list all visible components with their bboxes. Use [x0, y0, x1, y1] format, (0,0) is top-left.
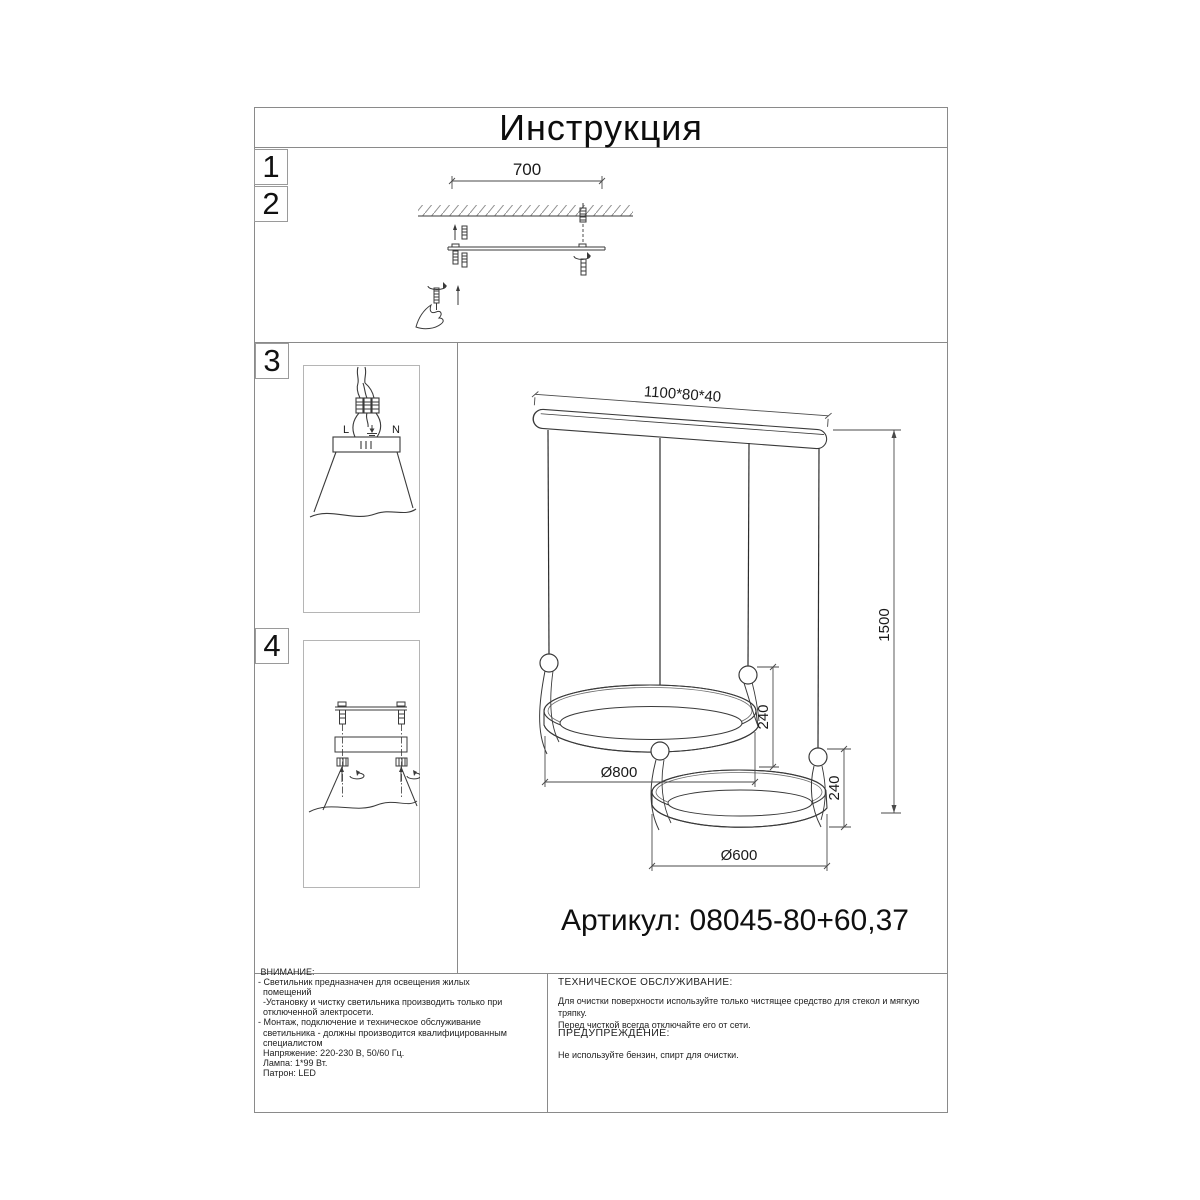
attention-note: ВНИМАНИЕ: - Светильник предназначен для … — [258, 967, 543, 1078]
divider-left-column — [457, 342, 458, 973]
terminal-block — [356, 398, 379, 413]
bracket-span-label: 700 — [513, 160, 541, 179]
ring-large-diameter-label: Ø800 — [601, 764, 638, 781]
ceiling-hatch — [418, 205, 633, 216]
sphere-small-left — [651, 742, 669, 760]
bar-screws — [453, 251, 591, 275]
instruction-sheet: Инструкция 1 2 3 4 700 — [0, 0, 1200, 1200]
maintenance-heading: ТЕХНИЧЕСКОЕ ОБСЛУЖИВАНИЕ: — [558, 977, 733, 988]
ring-large — [540, 654, 759, 754]
drop-length-label: 1500 — [876, 608, 893, 641]
divider-bottom-boxes — [547, 973, 548, 1113]
maintenance-body: Для очистки поверхности используйте толь… — [558, 995, 938, 1031]
ring-small-height-label: 240 — [826, 775, 843, 800]
ring-small — [651, 742, 827, 830]
shade-cone — [310, 452, 416, 517]
bracket-bar — [335, 702, 407, 710]
screw-with-arrow — [453, 224, 467, 240]
sphere-small-right — [809, 748, 827, 766]
canopy-fixing-drawing — [303, 640, 420, 888]
ceiling-mount-drawing: 700 — [398, 158, 660, 338]
divider-mid — [254, 342, 948, 343]
sphere-large-left — [540, 654, 558, 672]
hand-anchor-icon — [416, 282, 460, 329]
step-number-2: 2 — [254, 186, 288, 222]
hanging-screws — [340, 710, 405, 798]
live-label: L — [343, 424, 349, 436]
step-number-4: 4 — [255, 628, 289, 664]
mounting-bar — [448, 244, 605, 250]
canopy-size-label: 1100*80*40 — [643, 383, 721, 406]
step-number-1: 1 — [254, 149, 288, 185]
warning-body: Не используйте бензин, спирт для очистки… — [558, 1050, 739, 1060]
canopy-bar: 1100*80*40 — [530, 380, 833, 449]
neutral-label: N — [392, 424, 400, 436]
dim-arrow-bottom — [892, 805, 897, 813]
warning-heading: ПРЕДУПРЕЖДЕНИЕ: — [558, 1027, 670, 1039]
canopy-side-view — [335, 737, 407, 752]
wiring-drawing: L N — [303, 365, 420, 613]
supply-wires — [357, 367, 374, 398]
dim-arrow-top — [892, 430, 897, 438]
article-number: Артикул: 08045-80+60,37 — [505, 903, 965, 939]
ring-small-diameter-label: Ø600 — [721, 847, 758, 864]
canopy-box — [333, 437, 400, 452]
fixing-nuts — [337, 758, 420, 782]
sphere-large-right — [739, 666, 757, 684]
ring-large-height-label: 240 — [755, 704, 772, 729]
pendant-drawing: 1100*80*40 — [460, 380, 945, 880]
step-number-3: 3 — [255, 343, 289, 379]
page-title: Инструкция — [254, 109, 948, 147]
